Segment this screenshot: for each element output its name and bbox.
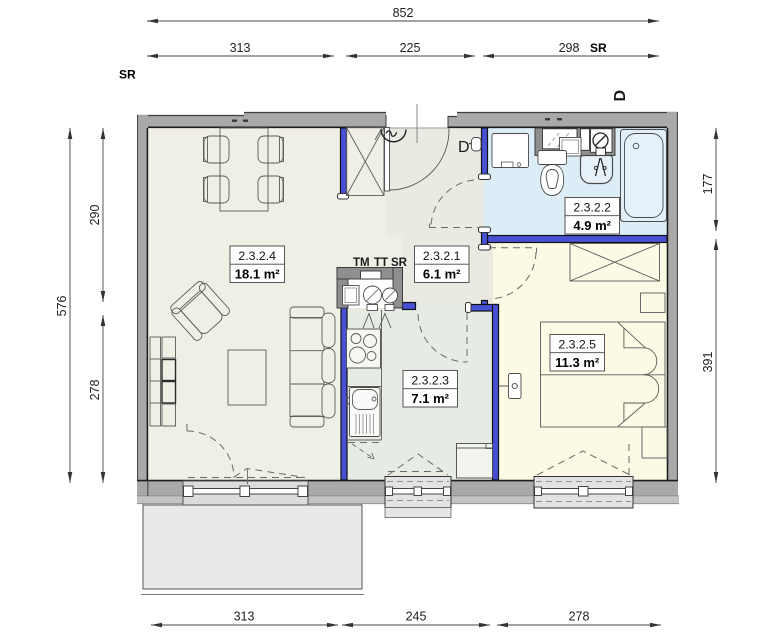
svg-text:D: D bbox=[458, 139, 470, 156]
svg-text:177: 177 bbox=[701, 174, 715, 195]
svg-text:SR: SR bbox=[590, 41, 607, 55]
svg-text:4.9 m²: 4.9 m² bbox=[573, 218, 611, 233]
svg-text:290: 290 bbox=[88, 205, 102, 226]
svg-text:225: 225 bbox=[400, 41, 421, 55]
svg-text:2.3.2.1: 2.3.2.1 bbox=[423, 249, 461, 263]
svg-text:TT: TT bbox=[374, 257, 388, 269]
svg-text:11.3 m²: 11.3 m² bbox=[555, 355, 600, 370]
svg-text:313: 313 bbox=[234, 610, 255, 624]
svg-text:278: 278 bbox=[569, 610, 590, 624]
svg-text:391: 391 bbox=[701, 352, 715, 373]
svg-text:D: D bbox=[612, 90, 629, 102]
svg-text:313: 313 bbox=[230, 41, 251, 55]
svg-text:6.1 m²: 6.1 m² bbox=[423, 267, 461, 282]
svg-text:SR: SR bbox=[391, 257, 408, 269]
svg-text:SR: SR bbox=[119, 68, 136, 82]
svg-text:TM: TM bbox=[353, 257, 370, 269]
svg-text:2.3.2.4: 2.3.2.4 bbox=[238, 249, 276, 263]
svg-text:298: 298 bbox=[559, 41, 580, 55]
svg-text:2.3.2.2: 2.3.2.2 bbox=[573, 201, 611, 215]
svg-text:278: 278 bbox=[88, 380, 102, 401]
svg-text:576: 576 bbox=[55, 296, 69, 317]
svg-text:7.1 m²: 7.1 m² bbox=[411, 391, 449, 406]
svg-text:852: 852 bbox=[393, 6, 414, 20]
svg-text:2.3.2.5: 2.3.2.5 bbox=[558, 338, 596, 352]
svg-text:2.3.2.3: 2.3.2.3 bbox=[411, 374, 449, 388]
svg-text:18.1 m²: 18.1 m² bbox=[235, 267, 280, 282]
svg-text:245: 245 bbox=[406, 610, 427, 624]
